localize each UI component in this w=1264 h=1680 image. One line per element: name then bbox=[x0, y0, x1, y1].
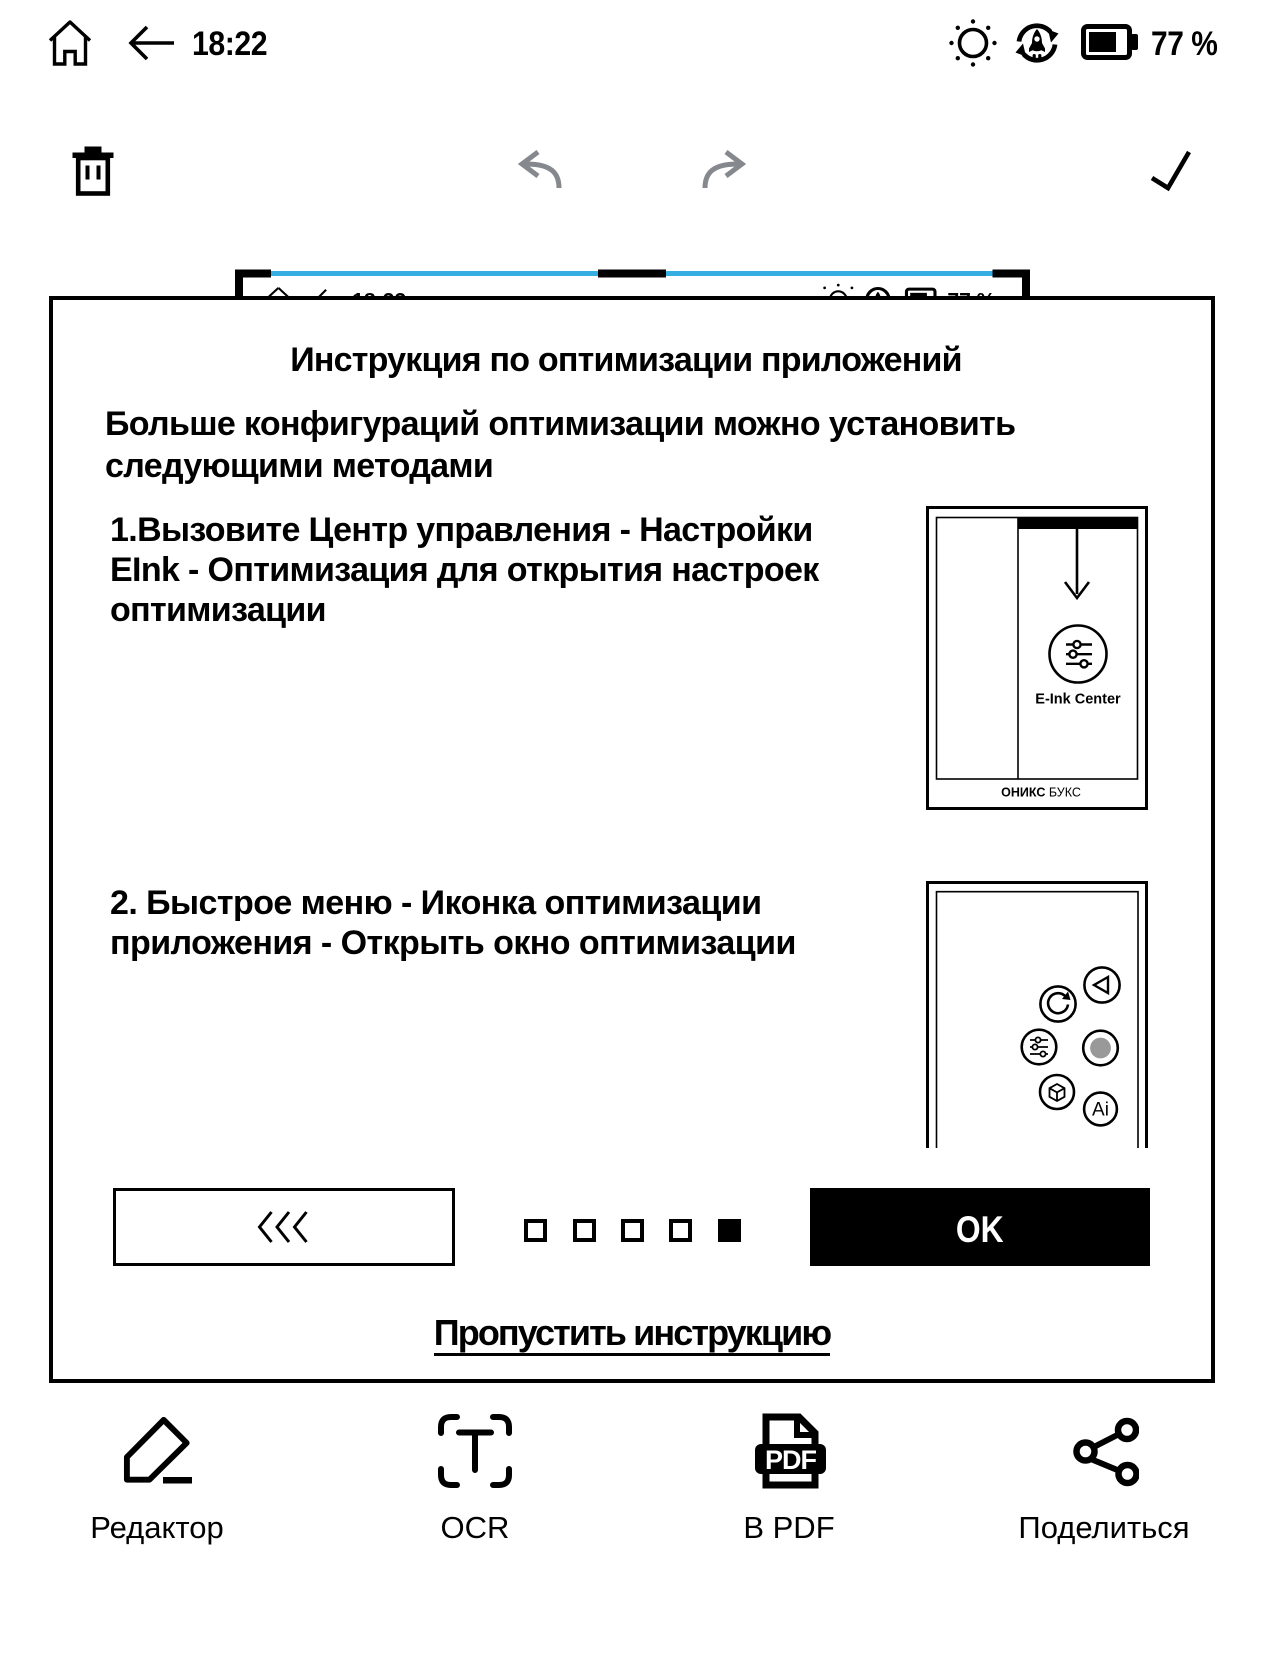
svg-text:Ai: Ai bbox=[1092, 1100, 1109, 1121]
svg-text:ОНИКС БУКС: ОНИКС БУКС bbox=[1001, 786, 1081, 800]
svg-text:E-Ink Center: E-Ink Center bbox=[1035, 692, 1121, 708]
svg-text:PDF: PDF bbox=[765, 1445, 817, 1475]
